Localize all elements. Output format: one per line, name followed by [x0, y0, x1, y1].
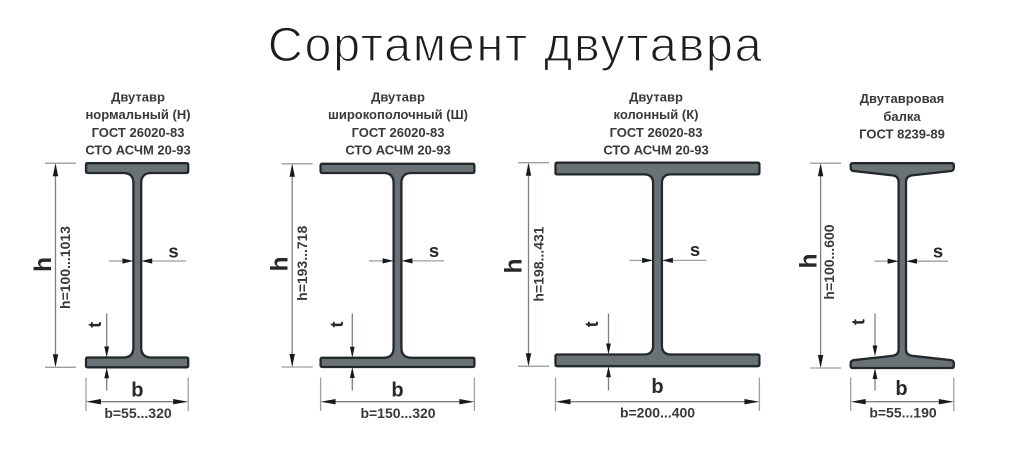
- svg-text:b: b: [131, 380, 143, 402]
- svg-text:Сортамент двутавра: Сортамент двутавра: [268, 18, 764, 72]
- svg-text:колонный (К): колонный (К): [614, 107, 699, 122]
- svg-text:s: s: [933, 241, 943, 262]
- svg-text:h=198...431: h=198...431: [531, 226, 547, 301]
- svg-text:t: t: [582, 321, 602, 327]
- svg-text:s: s: [168, 241, 178, 262]
- svg-text:СТО АСЧМ 20-93: СТО АСЧМ 20-93: [345, 143, 450, 158]
- svg-text:b=200...400: b=200...400: [620, 405, 695, 421]
- svg-text:b: b: [895, 378, 907, 400]
- svg-text:h: h: [796, 254, 823, 269]
- svg-text:s: s: [429, 240, 439, 261]
- svg-text:Двутавровая: Двутавровая: [860, 91, 944, 106]
- svg-text:СТО АСЧМ 20-93: СТО АСЧМ 20-93: [85, 143, 190, 158]
- svg-text:ГОСТ 26020-83: ГОСТ 26020-83: [352, 125, 445, 140]
- svg-text:балка: балка: [883, 109, 921, 124]
- svg-text:b: b: [651, 376, 663, 398]
- svg-text:нормальный (Н): нормальный (Н): [85, 107, 190, 122]
- svg-text:Двутавр: Двутавр: [371, 89, 425, 104]
- svg-text:b=150...320: b=150...320: [360, 405, 435, 421]
- svg-text:ГОСТ 8239-89: ГОСТ 8239-89: [859, 127, 945, 142]
- svg-text:широкополочный (Ш): широкополочный (Ш): [328, 107, 468, 122]
- svg-text:h=100...1013: h=100...1013: [57, 226, 73, 309]
- svg-text:b: b: [391, 379, 403, 401]
- svg-text:t: t: [327, 322, 347, 328]
- svg-text:b=55...320: b=55...320: [104, 405, 172, 421]
- svg-text:СТО АСЧМ 20-93: СТО АСЧМ 20-93: [603, 143, 708, 158]
- svg-text:s: s: [690, 239, 700, 260]
- svg-text:Двутавр: Двутавр: [629, 89, 683, 104]
- svg-text:h: h: [267, 257, 294, 272]
- svg-text:ГОСТ 26020-83: ГОСТ 26020-83: [610, 125, 703, 140]
- svg-text:h=100...600: h=100...600: [821, 224, 837, 299]
- svg-text:t: t: [849, 319, 869, 325]
- svg-text:Двутавр: Двутавр: [111, 89, 165, 104]
- svg-text:b=55...190: b=55...190: [869, 405, 937, 421]
- svg-text:t: t: [85, 322, 105, 328]
- svg-text:ГОСТ 26020-83: ГОСТ 26020-83: [92, 125, 185, 140]
- svg-text:h=193...718: h=193...718: [294, 226, 310, 301]
- svg-text:h: h: [30, 257, 57, 272]
- svg-text:h: h: [501, 259, 528, 274]
